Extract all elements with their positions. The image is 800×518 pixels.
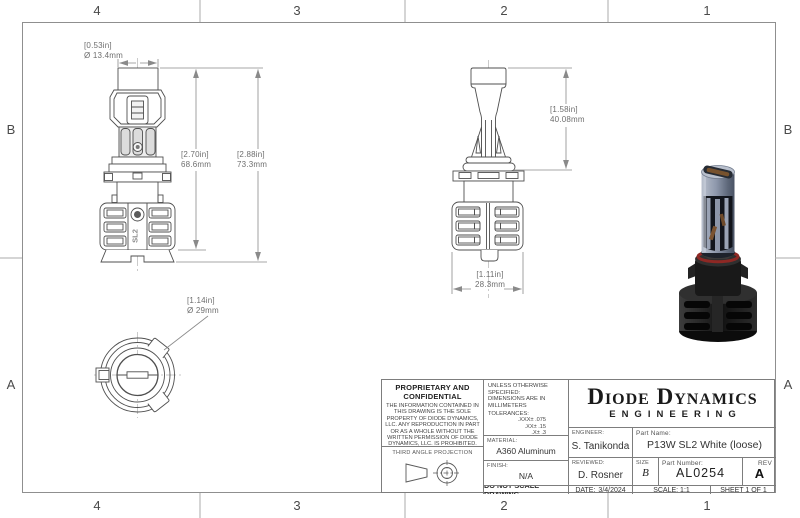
third-angle-projection-icon — [402, 459, 464, 489]
dim-base-diameter: [1.14in]Ø 29mm — [187, 296, 219, 315]
rev-value: A — [743, 466, 776, 481]
engineer-cell: ENGINEER: S. Tanikonda — [569, 428, 633, 458]
reviewed-value: D. Rosner — [569, 470, 632, 481]
zone-bottom-3: 3 — [290, 498, 304, 513]
logo-cell: Diode Dynamics ENGINEERING — [569, 380, 776, 428]
rev-label: REV — [758, 460, 772, 467]
tolerances-label: TOLERANCES: — [484, 409, 568, 417]
reviewed-label: REVIEWED: — [572, 460, 605, 466]
spec-line-1: UNLESS OTHERWISE SPECIFIED: — [484, 380, 568, 396]
dim-cap-diameter: [0.53in]Ø 13.4mm — [84, 41, 123, 60]
zone-bottom-4: 4 — [90, 498, 104, 513]
sheet-text: SHEET 1 OF 1 — [711, 486, 776, 494]
part-number-value: AL0254 — [659, 466, 742, 480]
part-name-value: P13W SL2 White (loose) — [633, 439, 776, 451]
drawing-sheet: SL2 — [0, 0, 800, 518]
zone-top-4: 4 — [90, 3, 104, 18]
dim-body-height: [2.70in]68.6mm — [180, 150, 212, 169]
material-label: MATERIAL: — [487, 438, 517, 444]
dim-heatsink-width: [1.11in]28.3mm — [475, 270, 505, 289]
zone-bottom-2: 2 — [497, 498, 511, 513]
company-logo-subtitle: ENGINEERING — [569, 409, 776, 420]
spec-line-2: DIMENSIONS ARE IN MILLIMETERS — [484, 396, 568, 409]
material-value: A360 Aluminum — [484, 446, 568, 456]
title-block: PROPRIETARY AND CONFIDENTIAL THE INFORMA… — [381, 379, 775, 493]
dim-upper-height: [1.58in]40.08mm — [549, 105, 586, 124]
front-view-drawing: SL2 — [100, 58, 175, 272]
zone-right-a: A — [781, 377, 795, 392]
engineer-value: S. Tanikonda — [569, 441, 632, 452]
scale-text: SCALE: 1:1 — [633, 486, 710, 494]
zone-top-1: 1 — [700, 3, 714, 18]
size-label: SIZE — [636, 460, 649, 466]
material-cell: MATERIAL: A360 Aluminum — [484, 436, 569, 461]
scale-cell: SCALE: 1:1 — [633, 486, 711, 494]
finish-cell: FINISH: N/A — [484, 461, 569, 486]
do-not-scale-cell: DO NOT SCALE DRAWING — [484, 486, 569, 494]
zone-right-b: B — [781, 122, 795, 137]
part-number-label: Part Number: — [662, 460, 703, 467]
bottom-view-drawing — [94, 332, 181, 418]
reviewed-cell: REVIEWED: D. Rosner — [569, 458, 633, 486]
engineer-label: ENGINEER: — [572, 430, 604, 436]
side-view-drawing — [452, 60, 524, 298]
date-value: 3/4/2024 — [598, 487, 625, 494]
heatsink-logo-text: SL2 — [131, 229, 140, 243]
finish-label: FINISH: — [487, 463, 508, 469]
date-label: DATE: — [575, 487, 595, 494]
size-cell: SIZE B — [633, 458, 659, 486]
part-name-label: Part Name: — [636, 430, 671, 437]
finish-value: N/A — [484, 471, 568, 481]
do-not-scale-text: DO NOT SCALE DRAWING — [484, 486, 568, 494]
dim-overall-height: [2.88in]73.3mm — [236, 150, 268, 169]
bulb-3d-render — [679, 165, 757, 342]
size-value: B — [633, 467, 658, 479]
third-angle-cell: THIRD ANGLE PROJECTION — [382, 447, 484, 494]
rev-cell: REV A — [743, 458, 776, 486]
sheet-cell: SHEET 1 OF 1 — [711, 486, 776, 494]
zone-bottom-1: 1 — [700, 498, 714, 513]
zone-top-3: 3 — [290, 3, 304, 18]
zone-left-a: A — [4, 377, 18, 392]
date-cell: DATE: 3/4/2024 — [569, 486, 633, 494]
part-number-cell: Part Number: AL0254 — [659, 458, 743, 486]
proprietary-title: PROPRIETARY AND CONFIDENTIAL — [382, 380, 483, 401]
proprietary-body: THE INFORMATION CONTAINED IN THIS DRAWIN… — [382, 401, 483, 447]
part-name-cell: Part Name: P13W SL2 White (loose) — [633, 428, 776, 458]
proprietary-cell: PROPRIETARY AND CONFIDENTIAL THE INFORMA… — [382, 380, 484, 447]
tolerances-cell: UNLESS OTHERWISE SPECIFIED: DIMENSIONS A… — [484, 380, 569, 436]
zone-top-2: 2 — [497, 3, 511, 18]
third-angle-label: THIRD ANGLE PROJECTION — [382, 447, 483, 456]
company-logo: Diode Dynamics — [569, 385, 776, 409]
zone-left-b: B — [4, 122, 18, 137]
